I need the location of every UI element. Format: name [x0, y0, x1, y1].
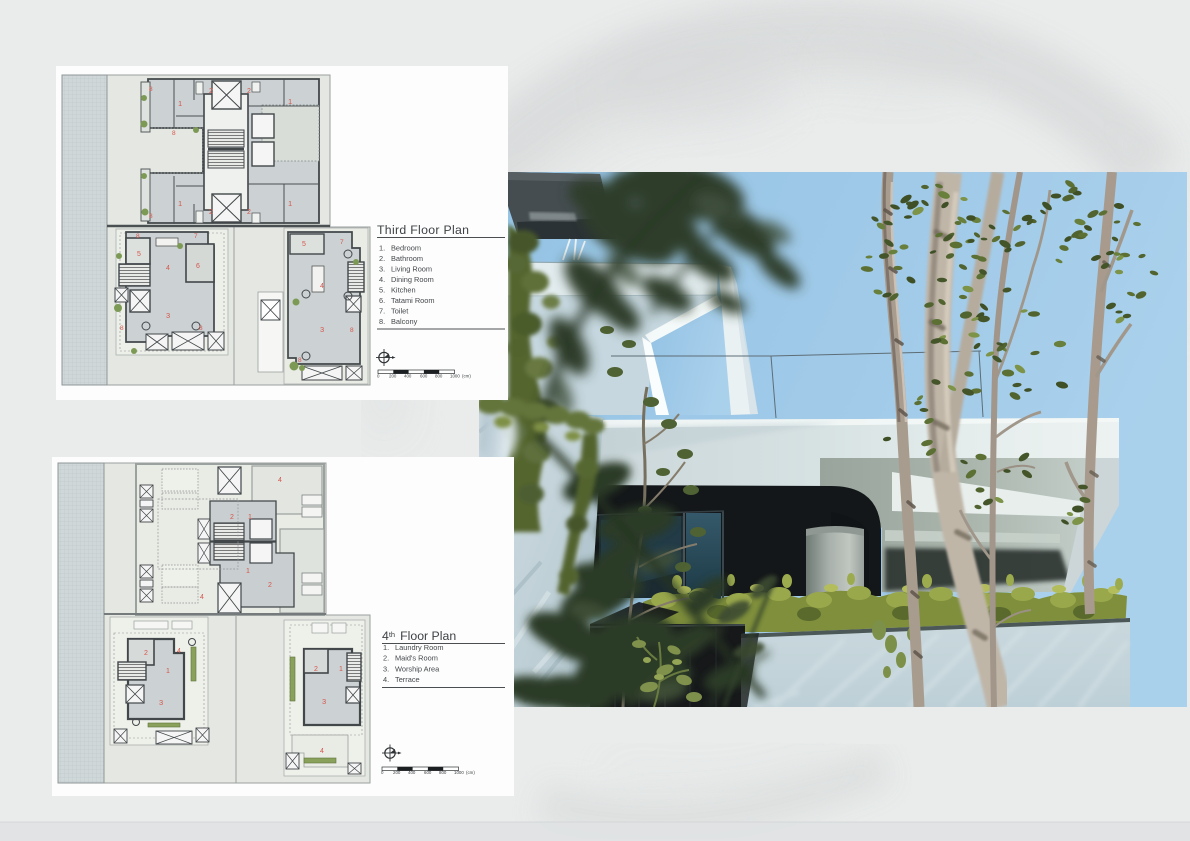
- svg-text:1: 1: [178, 99, 182, 108]
- svg-text:4thFloor Plan: 4thFloor Plan: [382, 629, 456, 643]
- svg-text:1: 1: [248, 514, 252, 521]
- svg-text:4: 4: [320, 748, 324, 755]
- svg-text:3: 3: [166, 311, 170, 320]
- svg-text:Laundry Room: Laundry Room: [395, 643, 443, 652]
- svg-text:1000: 1000: [454, 770, 464, 775]
- svg-text:6.: 6.: [379, 296, 385, 305]
- svg-text:5: 5: [302, 241, 306, 248]
- svg-text:1000: 1000: [450, 374, 460, 379]
- svg-text:8: 8: [149, 86, 153, 93]
- svg-text:1.: 1.: [379, 244, 385, 253]
- svg-text:Worship Area: Worship Area: [395, 665, 440, 674]
- svg-text:5.: 5.: [379, 286, 385, 295]
- svg-text:3.: 3.: [379, 265, 385, 274]
- svg-text:2: 2: [314, 666, 318, 673]
- svg-text:4.: 4.: [383, 675, 389, 684]
- svg-text:3: 3: [322, 697, 326, 706]
- svg-text:1.: 1.: [383, 643, 389, 652]
- svg-text:Living Room: Living Room: [391, 265, 432, 274]
- svg-text:8: 8: [298, 357, 302, 364]
- svg-text:Toilet: Toilet: [391, 307, 408, 316]
- svg-text:7: 7: [340, 239, 344, 246]
- svg-text:Balcony: Balcony: [391, 317, 418, 326]
- svg-text:Terrace: Terrace: [395, 675, 420, 684]
- svg-text:(cm): (cm): [466, 770, 475, 775]
- svg-text:Bedroom: Bedroom: [391, 244, 421, 253]
- svg-text:2: 2: [209, 88, 213, 95]
- svg-text:6: 6: [196, 263, 200, 270]
- svg-text:2: 2: [209, 209, 213, 216]
- svg-text:0: 0: [377, 374, 380, 379]
- svg-text:400: 400: [404, 374, 412, 379]
- svg-text:2: 2: [144, 650, 148, 657]
- svg-text:200: 200: [393, 770, 401, 775]
- svg-text:600: 600: [424, 770, 432, 775]
- svg-text:1: 1: [246, 568, 250, 575]
- svg-text:8: 8: [350, 327, 354, 334]
- svg-text:200: 200: [389, 374, 397, 379]
- svg-text:3: 3: [159, 698, 163, 707]
- svg-text:8: 8: [172, 130, 176, 137]
- svg-text:4: 4: [177, 648, 181, 655]
- svg-text:1: 1: [288, 97, 292, 106]
- svg-text:4.: 4.: [379, 275, 385, 284]
- svg-text:800: 800: [439, 770, 447, 775]
- svg-text:2: 2: [247, 88, 251, 95]
- svg-text:2: 2: [230, 514, 234, 521]
- svg-text:400: 400: [408, 770, 416, 775]
- svg-text:2: 2: [268, 582, 272, 589]
- svg-text:1: 1: [339, 666, 343, 673]
- svg-text:Third Floor Plan: Third Floor Plan: [377, 223, 469, 237]
- svg-text:Maid's Room: Maid's Room: [395, 654, 438, 663]
- svg-text:2.: 2.: [383, 654, 389, 663]
- svg-text:4: 4: [320, 283, 324, 290]
- svg-text:600: 600: [420, 374, 428, 379]
- svg-text:(cm): (cm): [462, 374, 471, 379]
- svg-text:8: 8: [120, 325, 124, 332]
- svg-text:1: 1: [178, 199, 182, 208]
- svg-text:Kitchen: Kitchen: [391, 286, 416, 295]
- svg-text:7.: 7.: [379, 307, 385, 316]
- svg-text:3: 3: [320, 325, 324, 334]
- svg-text:Tatami Room: Tatami Room: [391, 296, 435, 305]
- svg-text:Dining Room: Dining Room: [391, 275, 434, 284]
- svg-text:5: 5: [137, 251, 141, 258]
- svg-text:8: 8: [136, 233, 140, 240]
- svg-text:1: 1: [166, 668, 170, 675]
- svg-text:3.: 3.: [383, 665, 389, 674]
- svg-text:4: 4: [166, 265, 170, 272]
- svg-text:2.: 2.: [379, 254, 385, 263]
- svg-text:8: 8: [149, 213, 153, 220]
- svg-text:7: 7: [194, 233, 198, 240]
- svg-text:2: 2: [247, 209, 251, 216]
- svg-text:4: 4: [278, 477, 282, 484]
- svg-text:1: 1: [288, 199, 292, 208]
- svg-text:Bathroom: Bathroom: [391, 254, 423, 263]
- svg-text:4: 4: [200, 594, 204, 601]
- svg-text:8.: 8.: [379, 317, 385, 326]
- svg-text:8: 8: [199, 325, 203, 332]
- svg-text:800: 800: [435, 374, 443, 379]
